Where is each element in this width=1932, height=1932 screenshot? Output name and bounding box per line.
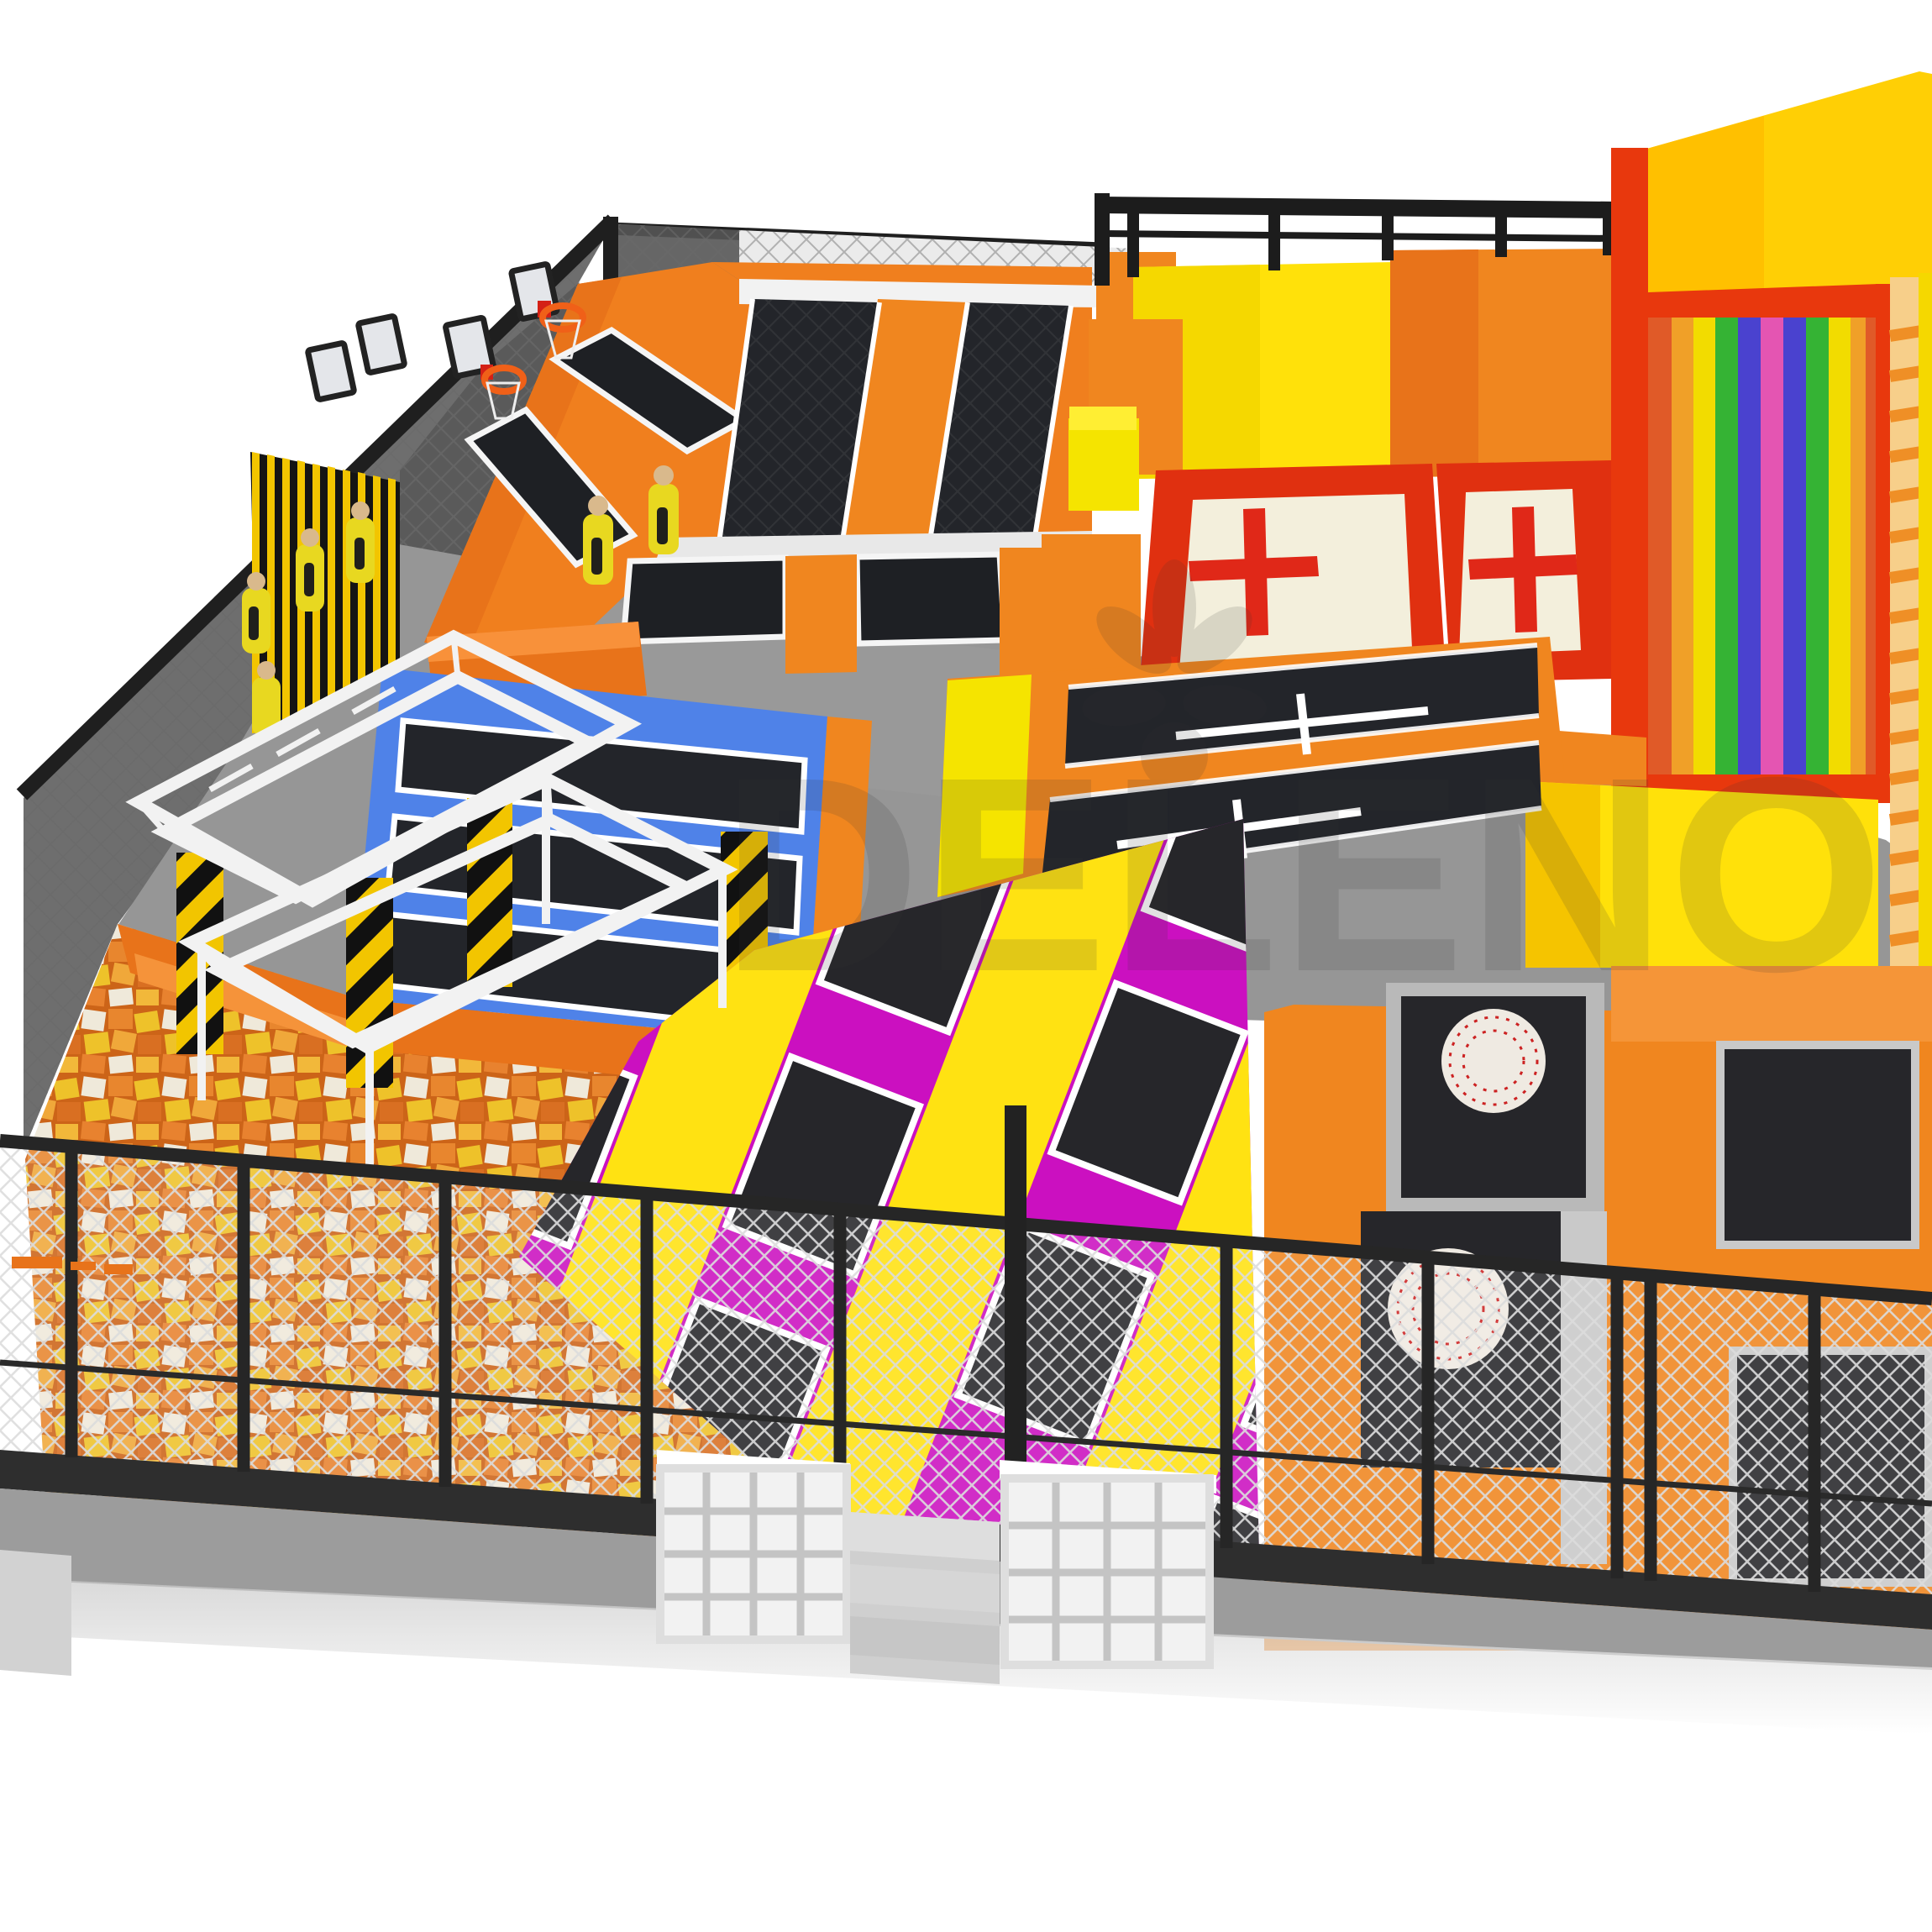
svg-text:DELENO: DELENO [721, 719, 1886, 1029]
